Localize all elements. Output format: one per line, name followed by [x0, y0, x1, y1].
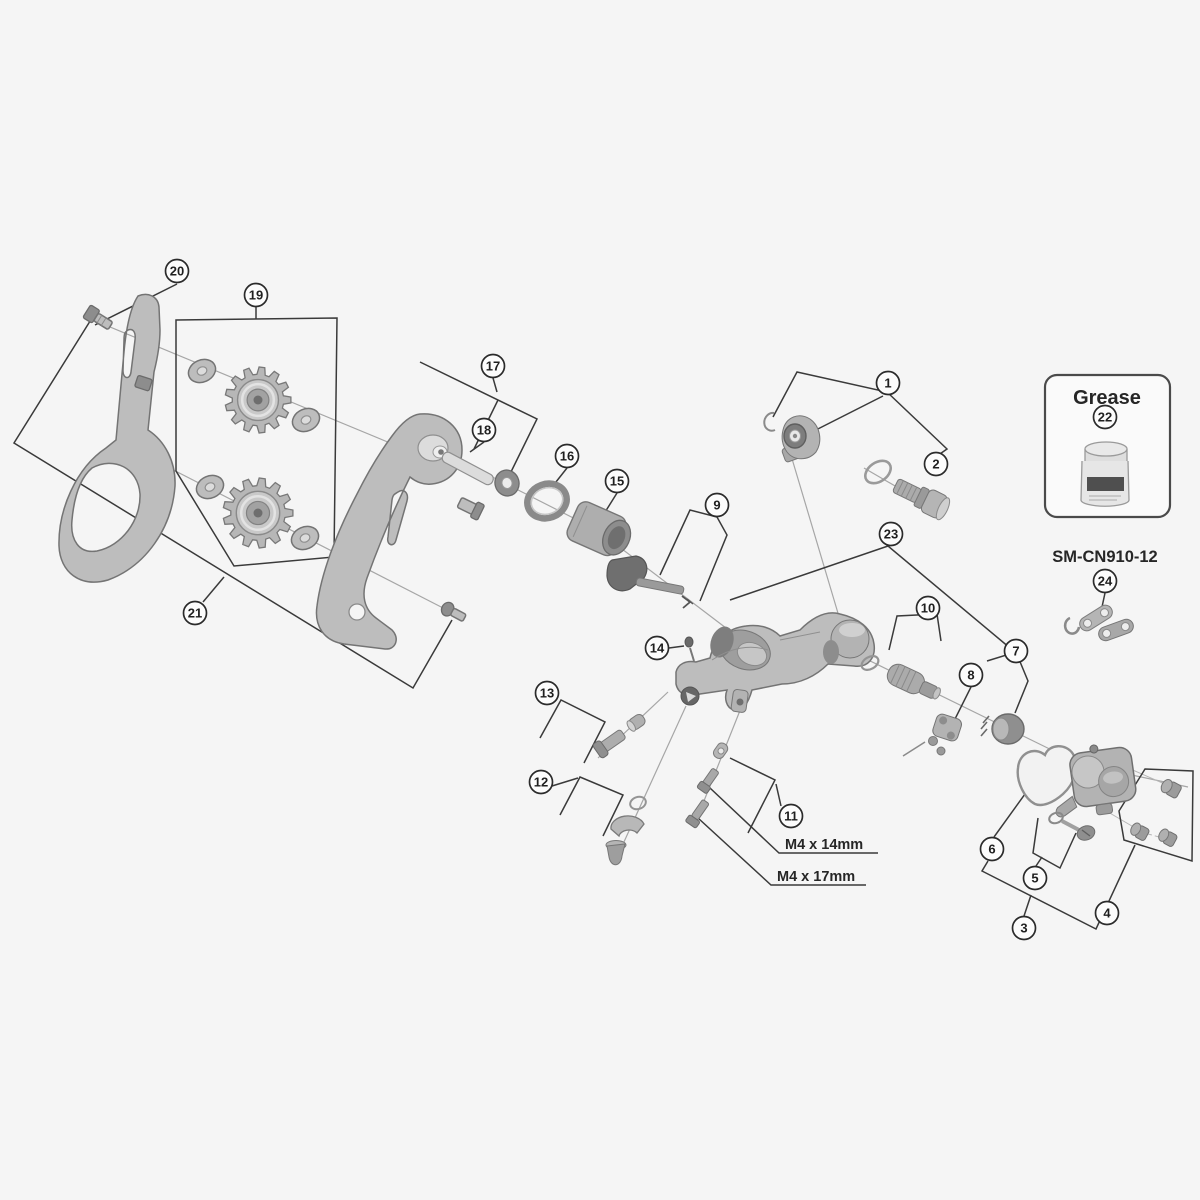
svg-text:2: 2	[932, 457, 939, 472]
adjust-knob	[981, 714, 1024, 744]
snap-ring	[522, 478, 571, 524]
svg-text:10: 10	[921, 601, 935, 616]
quick-links	[1065, 603, 1135, 643]
svg-text:17: 17	[486, 359, 500, 374]
group-bracket-11	[730, 758, 775, 833]
tension-pulley	[223, 478, 293, 548]
leader-14	[669, 646, 684, 648]
svg-text:5: 5	[1031, 871, 1038, 886]
callout-6: 6	[981, 838, 1004, 861]
fixing-screws	[1128, 778, 1182, 848]
group-bracket-13	[540, 700, 605, 763]
svg-text:1: 1	[884, 376, 891, 391]
callouts: 123456789101112131415161718192021222324	[166, 260, 1119, 940]
callout-11: 11	[780, 805, 803, 828]
inner-cage-plate	[59, 294, 175, 582]
callout-10: 10	[917, 597, 940, 620]
callout-12: 12	[530, 771, 553, 794]
callout-1: 1	[877, 372, 900, 395]
svg-text:16: 16	[560, 449, 574, 464]
svg-text:18: 18	[477, 423, 491, 438]
set-screw	[685, 637, 694, 661]
outer-cage-plate	[316, 414, 462, 649]
svg-text:15: 15	[610, 474, 624, 489]
svg-text:21: 21	[188, 606, 202, 621]
cable-clamp	[903, 713, 963, 756]
m4-17mm-label: M4 x 17mm	[777, 869, 855, 885]
parts	[59, 294, 1182, 864]
callout-14: 14	[646, 637, 669, 660]
m4-bolt-group	[685, 741, 730, 828]
svg-text:9: 9	[713, 498, 720, 513]
callout-19: 19	[245, 284, 268, 307]
spring-plug	[884, 661, 944, 705]
svg-text:20: 20	[170, 264, 184, 279]
callout-16: 16	[556, 445, 579, 468]
mount-bracket	[764, 413, 820, 463]
callout-15: 15	[606, 470, 629, 493]
diagram-canvas: Grease SM-CN910-12 M4 x 14mm M4 x 17mm 1…	[0, 0, 1200, 1200]
svg-text:7: 7	[1012, 644, 1019, 659]
svg-text:6: 6	[988, 842, 995, 857]
svg-text:14: 14	[650, 641, 665, 656]
svg-text:12: 12	[534, 775, 548, 790]
grease-jar	[1081, 442, 1129, 506]
cable-tool	[607, 556, 693, 608]
callout-21: 21	[184, 602, 207, 625]
callout-7: 7	[1005, 640, 1028, 663]
main-body	[676, 613, 874, 713]
m4-14mm-label: M4 x 14mm	[785, 837, 863, 853]
callout-22: 22	[1094, 406, 1117, 429]
callout-23: 23	[880, 523, 903, 546]
svg-text:24: 24	[1098, 574, 1113, 589]
callout-9: 9	[706, 494, 729, 517]
pulley-set	[223, 367, 293, 548]
lever-pin	[1048, 811, 1097, 843]
gasket-seal	[1018, 746, 1076, 805]
dust-cap	[492, 467, 522, 498]
chain-code-label: SM-CN910-12	[1052, 548, 1157, 566]
callout-17: 17	[482, 355, 505, 378]
leader-8	[955, 687, 971, 719]
group-bracket-10	[889, 614, 941, 650]
grease-box: Grease	[1045, 375, 1170, 517]
callout-24: 24	[1094, 570, 1117, 593]
callout-2: 2	[925, 453, 948, 476]
svg-text:22: 22	[1098, 410, 1112, 425]
callout-13: 13	[536, 682, 559, 705]
svg-text:13: 13	[540, 686, 554, 701]
svg-text:4: 4	[1103, 906, 1111, 921]
bracket-axle-bolt	[890, 474, 953, 522]
exploded-parts-diagram: Grease SM-CN910-12 M4 x 14mm M4 x 17mm 1…	[0, 0, 1200, 1200]
svg-text:11: 11	[784, 809, 798, 824]
callout-20: 20	[166, 260, 189, 283]
cage-pulley-bolt	[439, 600, 468, 624]
svg-text:19: 19	[249, 288, 263, 303]
svg-text:8: 8	[967, 668, 974, 683]
guide-pulley	[225, 367, 291, 433]
callout-8: 8	[960, 664, 983, 687]
callout-3: 3	[1013, 917, 1036, 940]
callout-5: 5	[1024, 867, 1047, 890]
svg-text:23: 23	[884, 527, 898, 542]
svg-text:3: 3	[1020, 921, 1027, 936]
plate-bolt-top-left	[83, 305, 115, 333]
pivot-pin	[440, 450, 495, 520]
callout-4: 4	[1096, 902, 1119, 925]
callout-18: 18	[473, 419, 496, 442]
